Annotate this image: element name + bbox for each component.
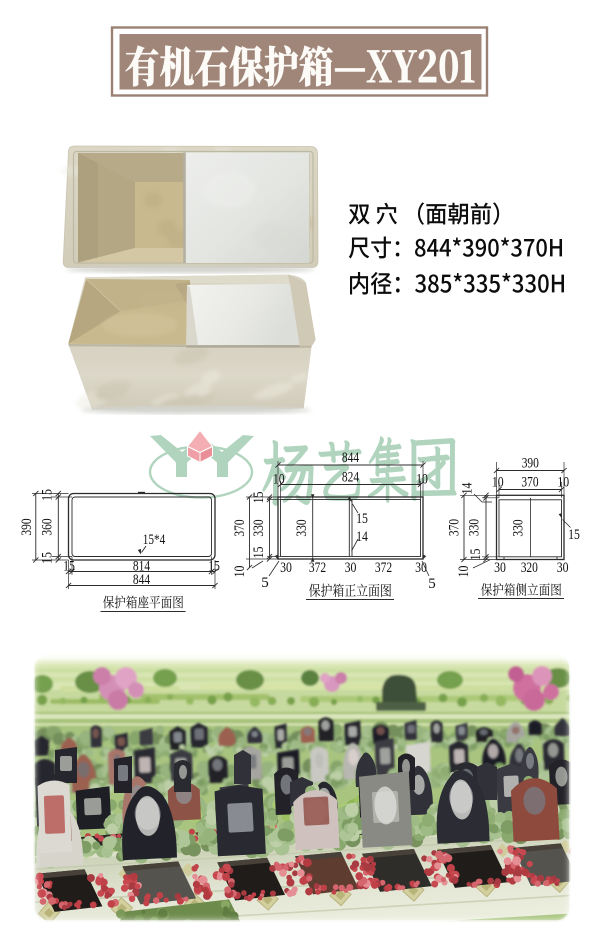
svg-text:15: 15: [356, 511, 368, 527]
svg-text:390: 390: [522, 456, 539, 472]
svg-text:30: 30: [280, 560, 292, 576]
svg-text:10: 10: [492, 475, 504, 491]
svg-text:5: 5: [261, 575, 269, 591]
svg-text:10: 10: [557, 475, 569, 491]
svg-text:5: 5: [428, 576, 436, 592]
svg-text:15: 15: [251, 547, 267, 559]
svg-text:370: 370: [232, 519, 248, 536]
svg-text:15: 15: [40, 489, 56, 501]
svg-text:14: 14: [356, 529, 368, 545]
svg-text:10: 10: [273, 472, 285, 488]
svg-text:824: 824: [342, 470, 360, 486]
svg-text:320: 320: [521, 560, 538, 576]
svg-text:390: 390: [19, 518, 35, 535]
svg-text:360: 360: [40, 518, 56, 535]
svg-text:372: 372: [309, 560, 326, 576]
svg-text:330: 330: [511, 519, 527, 536]
svg-text:10: 10: [416, 472, 428, 488]
svg-text:15: 15: [468, 549, 484, 561]
svg-text:10: 10: [232, 566, 248, 578]
svg-text:370: 370: [521, 475, 538, 491]
svg-text:30: 30: [557, 560, 569, 576]
svg-text:30: 30: [345, 560, 357, 576]
svg-text:370: 370: [447, 519, 463, 536]
svg-text:330: 330: [251, 519, 267, 536]
svg-text:330: 330: [294, 519, 310, 536]
svg-text:15: 15: [63, 559, 75, 575]
svg-text:372: 372: [375, 560, 392, 576]
svg-text:15: 15: [568, 527, 580, 543]
svg-text:15: 15: [40, 552, 56, 564]
svg-text:30: 30: [494, 560, 506, 576]
svg-text:10: 10: [456, 566, 472, 578]
svg-text:15*4: 15*4: [143, 532, 166, 548]
svg-text:15: 15: [251, 492, 267, 504]
svg-text:14: 14: [460, 482, 476, 494]
svg-text:330: 330: [467, 519, 483, 536]
svg-text:844: 844: [133, 572, 151, 588]
svg-text:844: 844: [342, 450, 360, 466]
svg-text:15: 15: [208, 559, 220, 575]
